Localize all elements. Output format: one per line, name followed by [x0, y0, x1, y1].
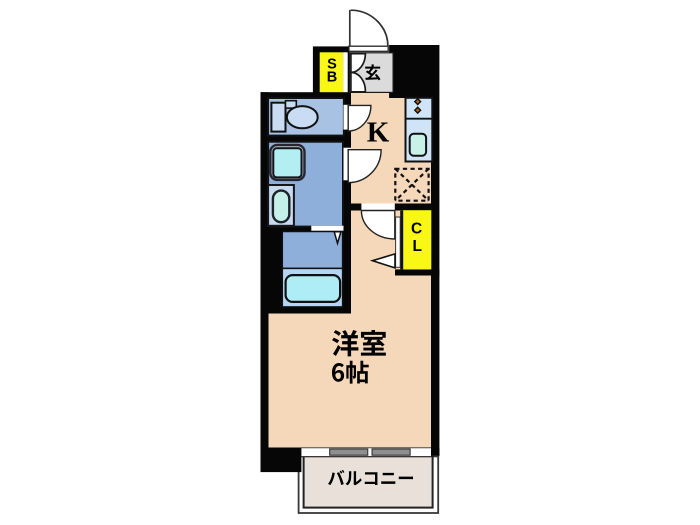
svg-text:K: K: [367, 116, 390, 148]
svg-text:B: B: [327, 70, 337, 86]
svg-text:C: C: [411, 220, 422, 237]
svg-text:L: L: [412, 238, 421, 255]
